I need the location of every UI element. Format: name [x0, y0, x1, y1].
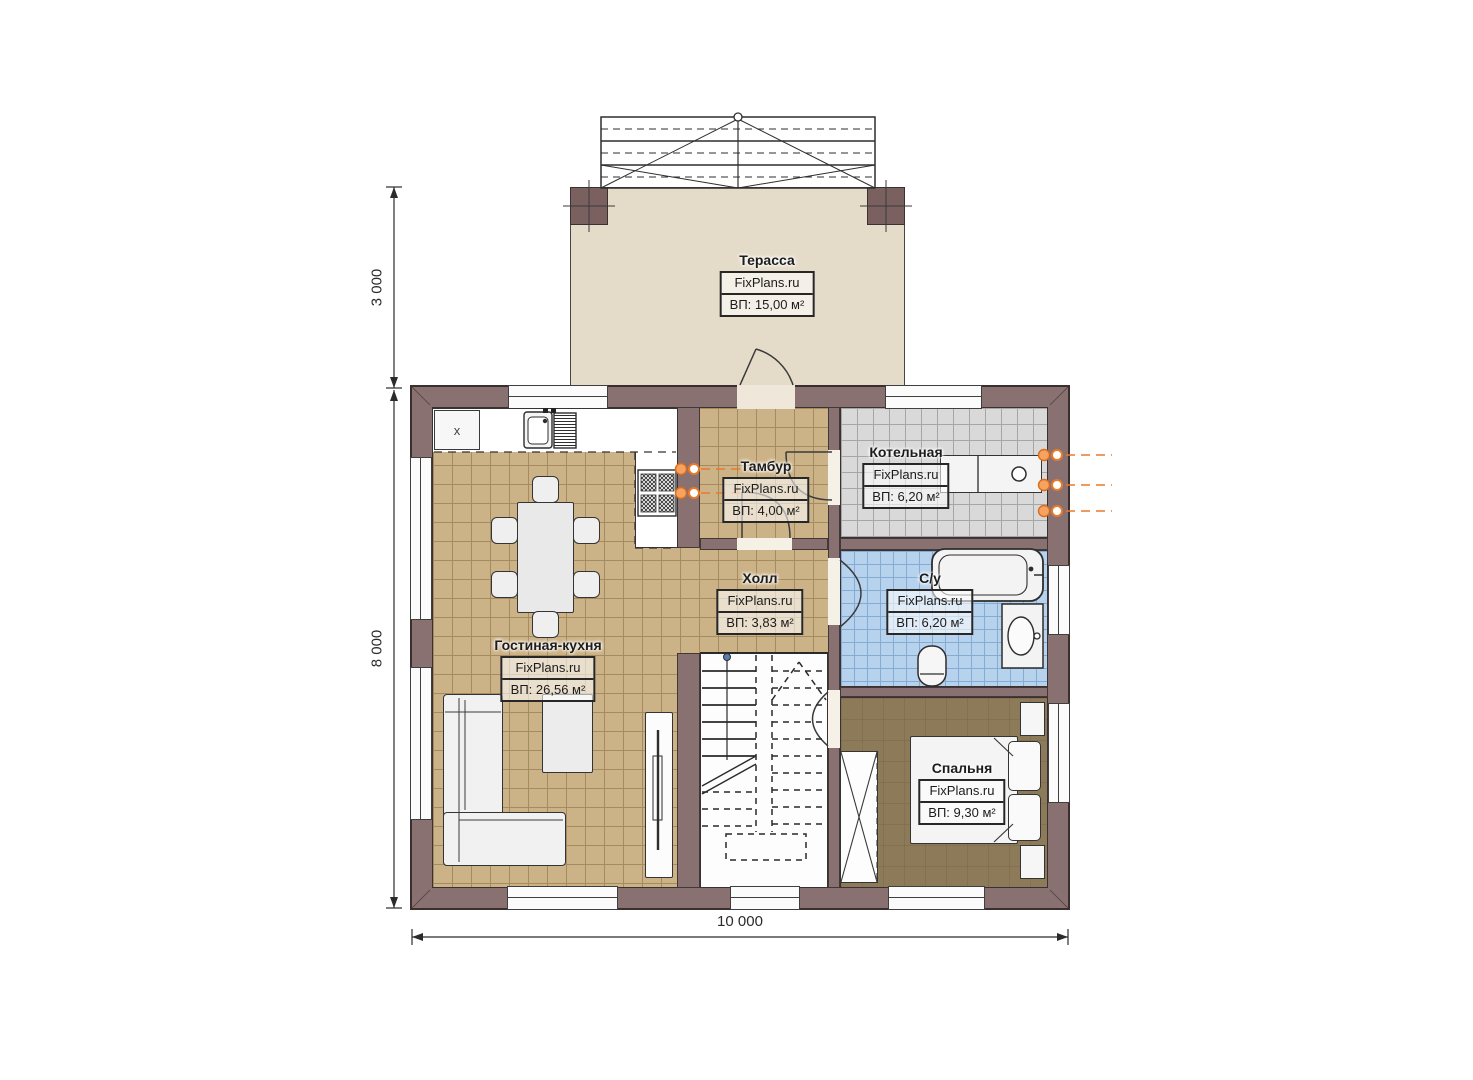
bed-pillow — [1008, 794, 1041, 841]
room-name: Спальня — [918, 760, 1005, 776]
window-bedroom-right — [1048, 703, 1070, 803]
room-name: Холл — [716, 570, 803, 586]
chair — [491, 571, 518, 598]
room-name: С/у — [886, 570, 973, 586]
watermark-text: FixPlans.ru — [724, 479, 807, 499]
room-area: ВП: 15,00 м² — [722, 293, 813, 315]
tv-stand — [645, 712, 673, 878]
room-label-boiler: Котельная FixPlans.ru ВП: 6,20 м² — [862, 444, 949, 509]
room-label-tambour: Тамбур FixPlans.ru ВП: 4,00 м² — [722, 458, 809, 523]
dimension-house-width: 10 000 — [700, 913, 780, 930]
watermark-box: FixPlans.ru ВП: 15,00 м² — [720, 271, 815, 317]
door-gap-bedroom — [828, 690, 840, 748]
chair — [573, 517, 600, 544]
door-gap-terrace-entry — [737, 385, 795, 409]
room-name: Тамбур — [722, 458, 809, 474]
nightstand — [1020, 845, 1045, 879]
watermark-box: FixPlans.ru ВП: 26,56 м² — [501, 656, 596, 702]
room-area: ВП: 3,83 м² — [718, 611, 801, 633]
window-stairs-bottom — [730, 886, 800, 910]
room-area: ВП: 6,20 м² — [864, 485, 947, 507]
door-gap-tambour-hall — [737, 538, 792, 550]
chair — [491, 517, 518, 544]
terrace-deck-steps — [601, 113, 875, 188]
dimension-terrace-depth: 3 000 — [369, 261, 386, 315]
chair — [532, 476, 559, 503]
watermark-box: FixPlans.ru ВП: 6,20 м² — [886, 589, 973, 635]
room-area: ВП: 6,20 м² — [888, 611, 971, 633]
room-label-hall: Холл FixPlans.ru ВП: 3,83 м² — [716, 570, 803, 635]
room-name: Гостиная-кухня — [494, 637, 601, 653]
window-bathroom-right — [1048, 565, 1070, 635]
door-gap-boiler — [828, 450, 840, 505]
boiler-unit — [940, 455, 1042, 493]
watermark-text: FixPlans.ru — [722, 273, 813, 293]
watermark-text: FixPlans.ru — [888, 591, 971, 611]
watermark-box: FixPlans.ru ВП: 4,00 м² — [722, 477, 809, 523]
door-gap-bathroom — [828, 558, 840, 625]
kitchen-corner-unit: х — [434, 410, 480, 450]
wall-bath-bedroom — [840, 687, 1048, 697]
window-bedroom-bottom — [888, 886, 985, 910]
bed-pillow — [1008, 741, 1041, 791]
window-boiler-top — [885, 385, 982, 409]
window-living-bottom — [507, 886, 618, 910]
chair — [573, 571, 600, 598]
dining-table — [517, 502, 574, 613]
watermark-text: FixPlans.ru — [503, 658, 594, 678]
dimension-house-depth: 8 000 — [369, 622, 386, 676]
room-area: ВП: 9,30 м² — [920, 801, 1003, 823]
room-area: ВП: 4,00 м² — [724, 499, 807, 521]
watermark-box: FixPlans.ru ВП: 3,83 м² — [716, 589, 803, 635]
coffee-table — [542, 694, 593, 773]
wardrobe — [840, 751, 878, 883]
window-kitchen-top — [508, 385, 608, 409]
window-living-left-2 — [410, 667, 432, 820]
wall-stairs-left — [677, 653, 700, 888]
room-name: Котельная — [862, 444, 949, 460]
wall-boiler-bath — [840, 538, 1048, 550]
wall-kitchen-tambour — [677, 407, 700, 548]
terrace-post-left — [570, 187, 608, 225]
sofa-horizontal-section — [443, 812, 566, 866]
floor-plan: х — [0, 0, 1473, 1080]
room-area: ВП: 26,56 м² — [503, 678, 594, 700]
watermark-text: FixPlans.ru — [920, 781, 1003, 801]
kitchen-counter-column — [635, 452, 678, 548]
watermark-box: FixPlans.ru ВП: 6,20 м² — [862, 463, 949, 509]
watermark-box: FixPlans.ru ВП: 9,30 м² — [918, 779, 1005, 825]
window-living-left-1 — [410, 457, 432, 620]
watermark-text: FixPlans.ru — [864, 465, 947, 485]
room-label-bathroom: С/у FixPlans.ru ВП: 6,20 м² — [886, 570, 973, 635]
nightstand — [1020, 702, 1045, 736]
chair — [532, 611, 559, 638]
room-name: Терасса — [720, 252, 815, 268]
kitchen-corner-unit-label: х — [454, 423, 461, 438]
room-label-bedroom: Спальня FixPlans.ru ВП: 9,30 м² — [918, 760, 1005, 825]
room-label-terrace: Терасса FixPlans.ru ВП: 15,00 м² — [720, 252, 815, 317]
terrace-post-right — [867, 187, 905, 225]
room-label-living-kitchen: Гостиная-кухня FixPlans.ru ВП: 26,56 м² — [494, 637, 601, 702]
staircase-area — [700, 653, 828, 888]
watermark-text: FixPlans.ru — [718, 591, 801, 611]
